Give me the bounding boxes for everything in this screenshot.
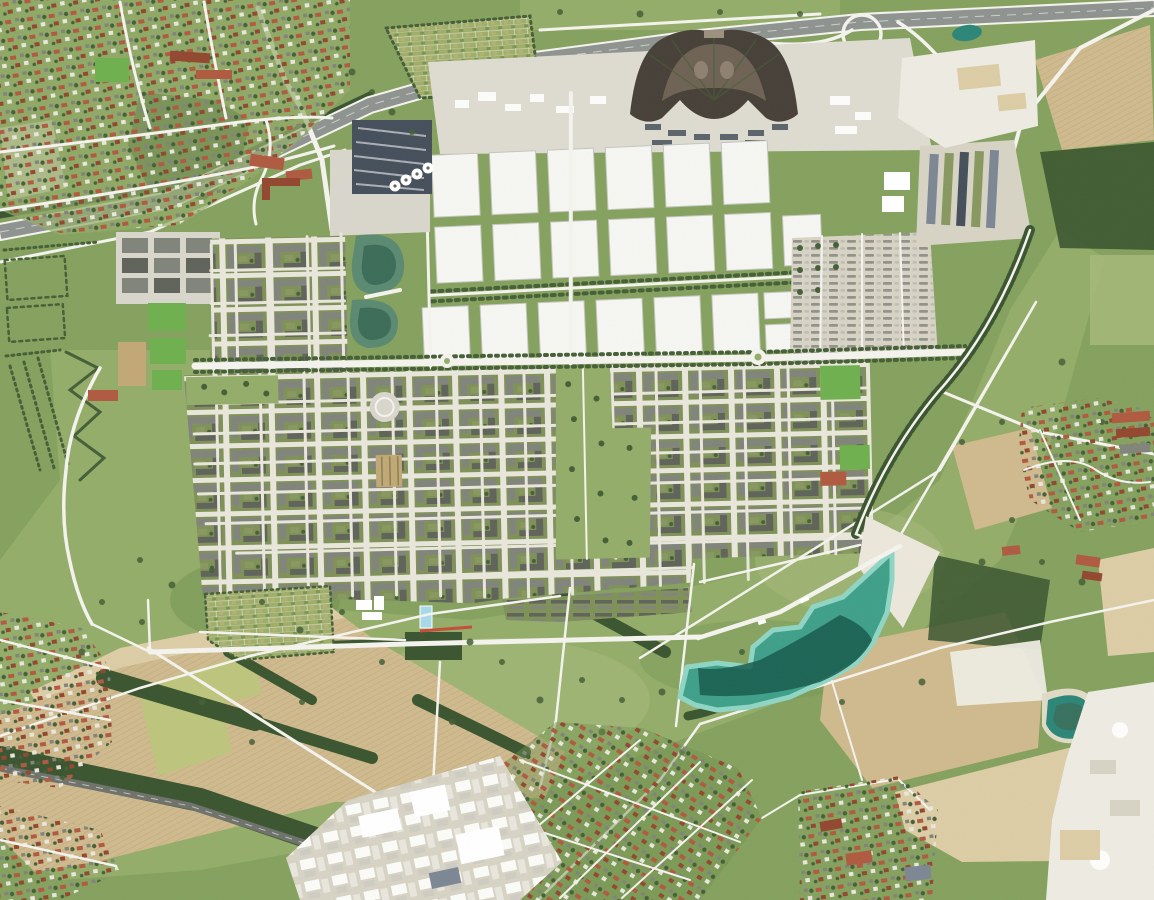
photo-grain-overlay: [0, 0, 1154, 900]
aerial-photo: [0, 0, 1154, 900]
aerial-photo-canvas: [0, 0, 1154, 900]
